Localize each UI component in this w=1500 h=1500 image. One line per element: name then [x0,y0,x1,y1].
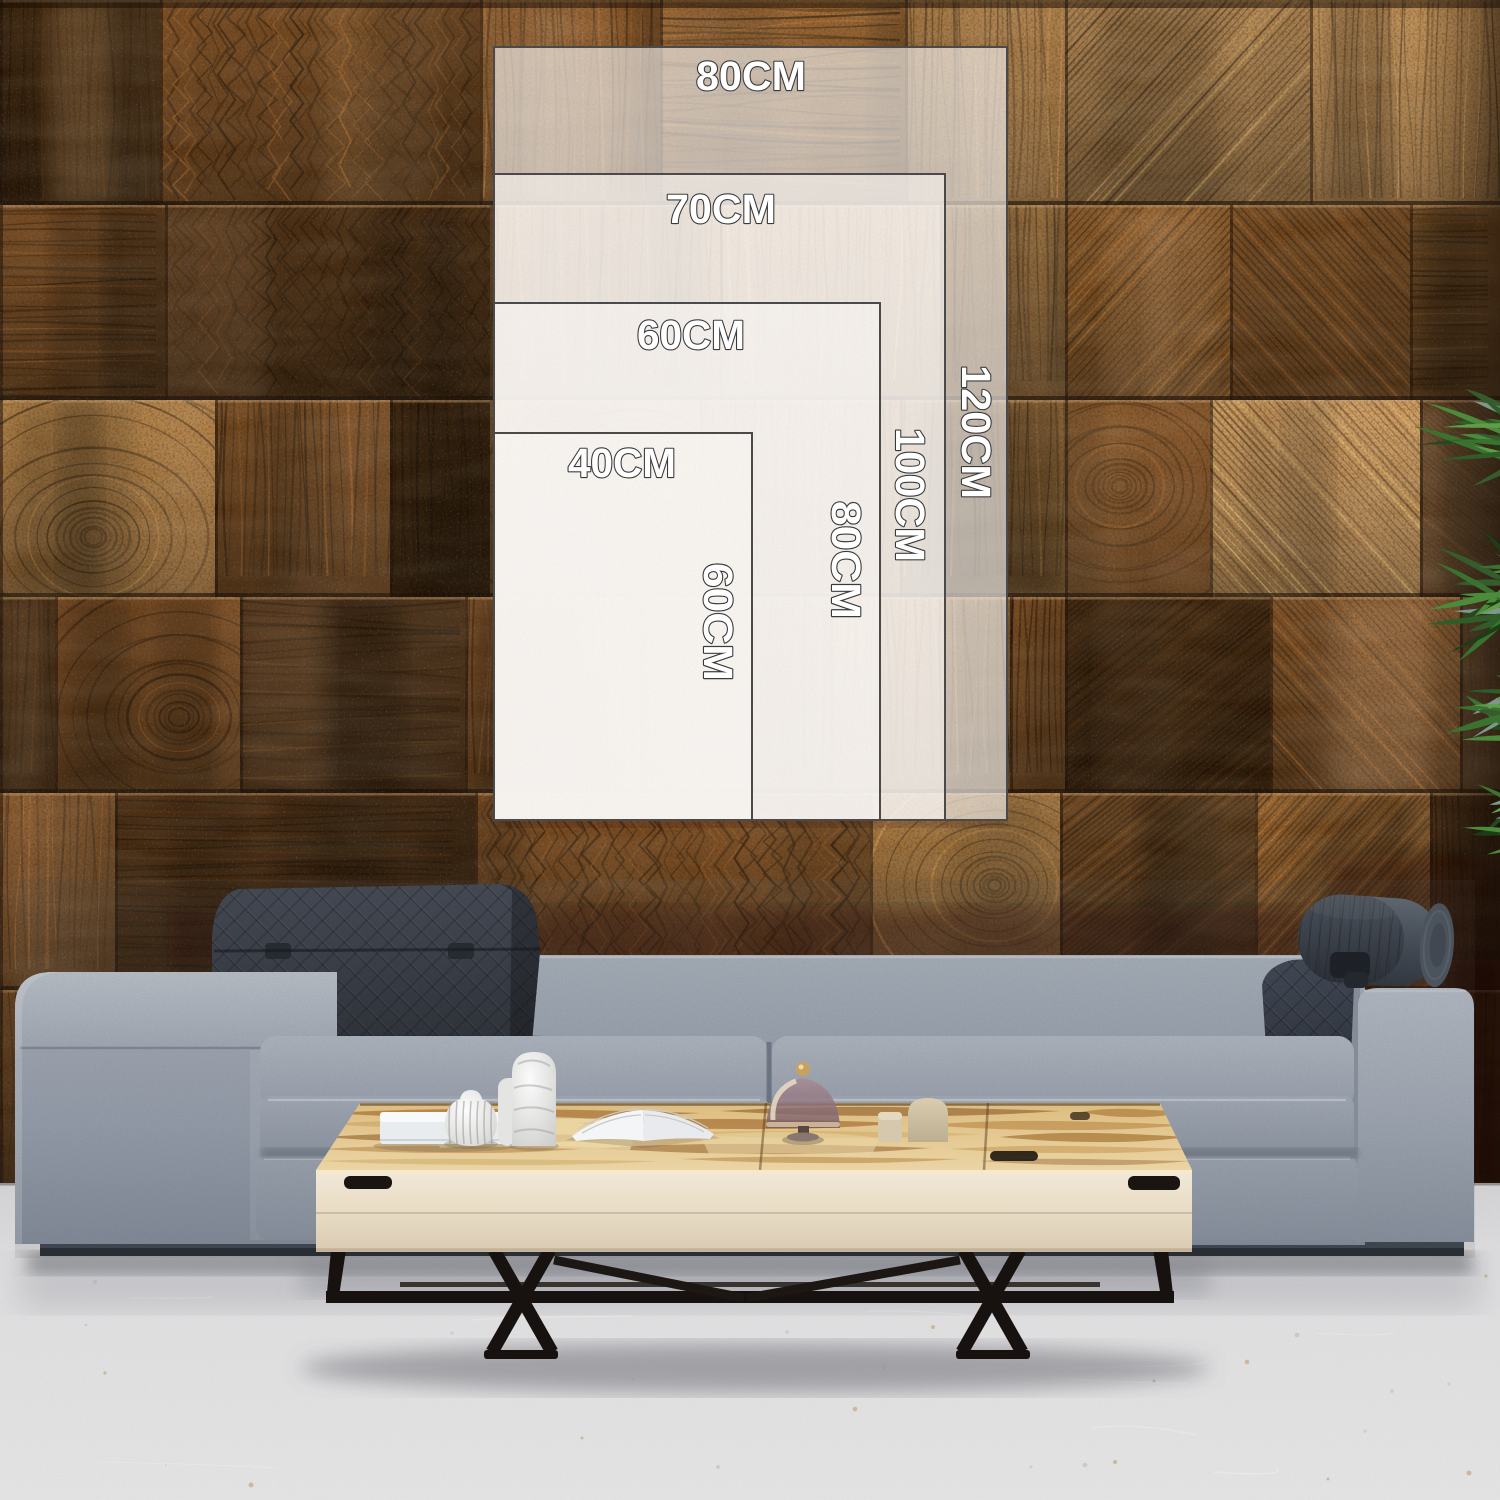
svg-text:60CM: 60CM [695,563,741,681]
svg-text:120CM: 120CM [953,365,999,499]
svg-text:60CM: 60CM [637,312,745,358]
svg-text:80CM: 80CM [696,53,806,99]
svg-text:100CM: 100CM [887,428,933,562]
svg-text:40CM: 40CM [568,440,676,486]
svg-text:80CM: 80CM [823,501,869,619]
svg-text:70CM: 70CM [666,186,776,232]
